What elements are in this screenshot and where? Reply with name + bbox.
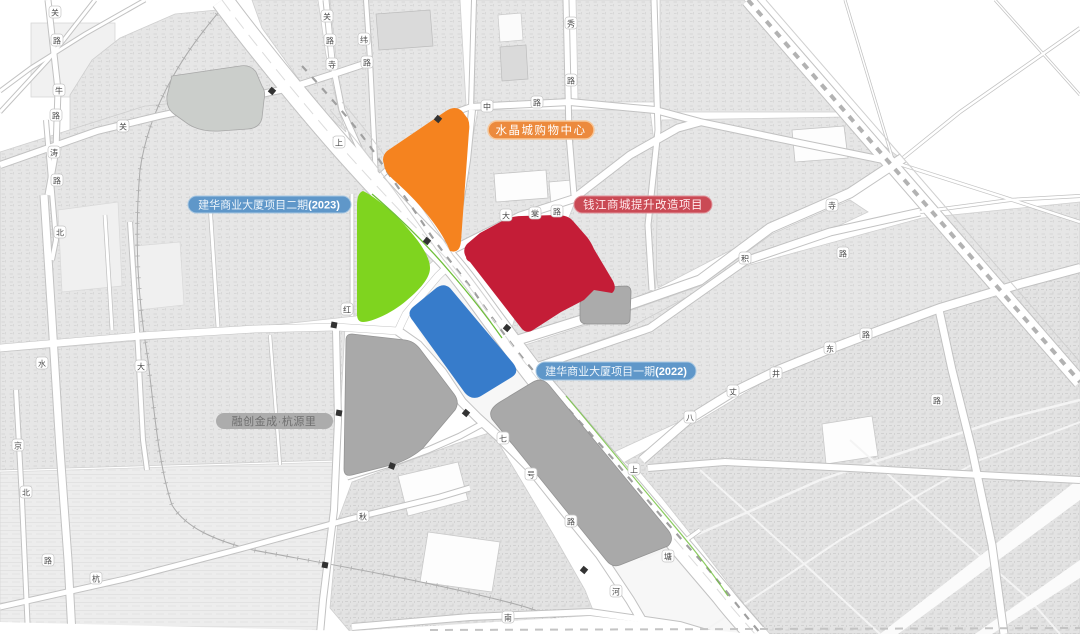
svg-text:秀: 秀 <box>567 19 575 29</box>
svg-text:东: 东 <box>826 344 834 354</box>
svg-text:京: 京 <box>14 441 22 451</box>
svg-text:杭: 杭 <box>92 574 100 584</box>
svg-text:积: 积 <box>741 254 749 264</box>
svg-text:大: 大 <box>137 362 145 372</box>
svg-text:棠: 棠 <box>531 209 539 219</box>
svg-text:路: 路 <box>533 98 541 108</box>
svg-text:路: 路 <box>52 111 60 121</box>
svg-text:河: 河 <box>612 587 620 597</box>
svg-text:路: 路 <box>53 176 61 186</box>
svg-text:号: 号 <box>527 471 535 480</box>
svg-text:南: 南 <box>504 613 512 623</box>
svg-text:建华商业大厦项目一期(2022): 建华商业大厦项目一期(2022) <box>545 364 687 378</box>
svg-text:中: 中 <box>483 102 491 112</box>
svg-text:关: 关 <box>51 8 59 18</box>
svg-text:寺: 寺 <box>328 61 336 70</box>
svg-text:路: 路 <box>53 36 61 46</box>
svg-text:路: 路 <box>567 76 575 86</box>
svg-text:水晶城购物中心: 水晶城购物中心 <box>496 123 587 137</box>
svg-text:丈: 丈 <box>729 387 737 397</box>
svg-text:涛: 涛 <box>50 148 58 158</box>
svg-text:路: 路 <box>839 249 847 259</box>
svg-text:路: 路 <box>363 58 371 68</box>
svg-text:八: 八 <box>686 414 694 423</box>
svg-text:路: 路 <box>567 517 575 527</box>
svg-text:关: 关 <box>119 122 127 132</box>
svg-text:路: 路 <box>326 36 334 46</box>
svg-text:路: 路 <box>862 330 870 340</box>
svg-text:融创金成·杭源里: 融创金成·杭源里 <box>232 414 317 428</box>
svg-text:大: 大 <box>502 211 510 221</box>
svg-text:上: 上 <box>630 466 638 475</box>
svg-text:井: 井 <box>772 369 780 379</box>
svg-text:寺: 寺 <box>828 202 836 211</box>
svg-text:纬: 纬 <box>360 35 368 45</box>
svg-text:建华商业大厦项目二期(2023): 建华商业大厦项目二期(2023) <box>198 198 340 212</box>
svg-text:北: 北 <box>56 229 64 238</box>
svg-text:钱江商城提升改造项目: 钱江商城提升改造项目 <box>583 198 703 212</box>
svg-text:北: 北 <box>22 489 30 498</box>
svg-text:上: 上 <box>335 139 343 148</box>
svg-text:塘: 塘 <box>664 552 672 562</box>
svg-text:关: 关 <box>323 12 331 22</box>
svg-text:秋: 秋 <box>359 512 367 522</box>
svg-text:牛: 牛 <box>55 86 63 96</box>
svg-text:路: 路 <box>933 396 941 406</box>
svg-text:红: 红 <box>343 305 351 315</box>
svg-text:七: 七 <box>499 435 507 444</box>
svg-text:水: 水 <box>38 359 46 369</box>
svg-text:路: 路 <box>44 556 52 566</box>
svg-text:路: 路 <box>553 207 561 217</box>
